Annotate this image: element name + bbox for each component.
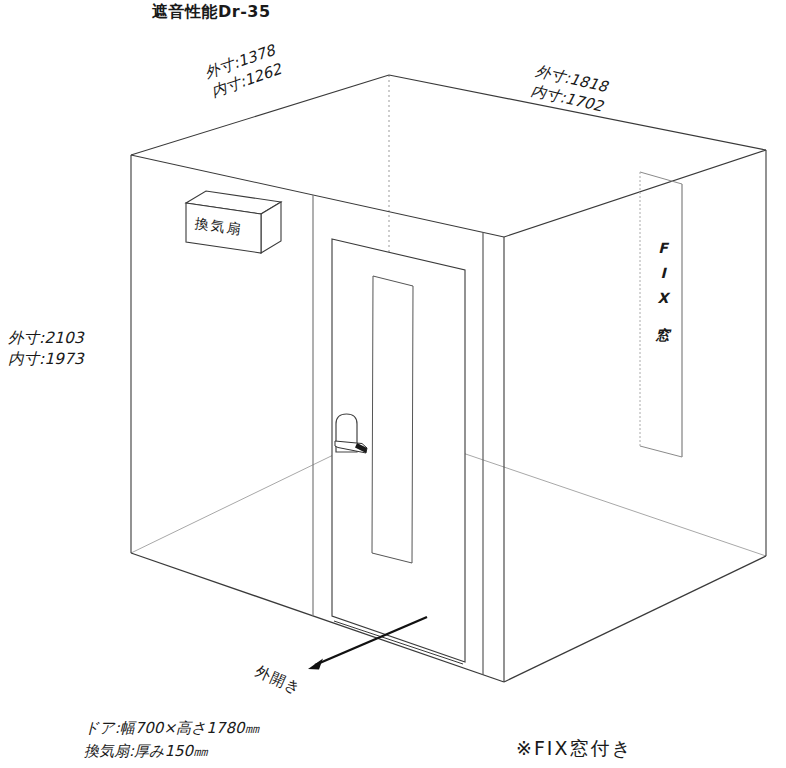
page-title: 遮音性能Dr-35 bbox=[152, 2, 271, 23]
dim-height-inner: 内寸:1973 bbox=[8, 349, 84, 370]
dim-height: 外寸:2103 内寸:1973 bbox=[8, 328, 84, 370]
fix-window-label: FIX窓 bbox=[654, 240, 672, 350]
note-fan-spec: 換気扇:厚み150㎜ bbox=[84, 742, 208, 761]
dim-height-outer: 外寸:2103 bbox=[8, 328, 84, 349]
note-door-spec: ドア:幅700×高さ1780㎜ bbox=[84, 719, 259, 738]
note-fix-window: ※FIX窓付き bbox=[516, 736, 633, 762]
diagram-canvas: 遮音性能Dr-35 外寸:1378 内寸:1262 外寸:1818 内寸:170… bbox=[0, 0, 786, 768]
door bbox=[313, 195, 483, 675]
booth-drawing bbox=[0, 0, 786, 768]
